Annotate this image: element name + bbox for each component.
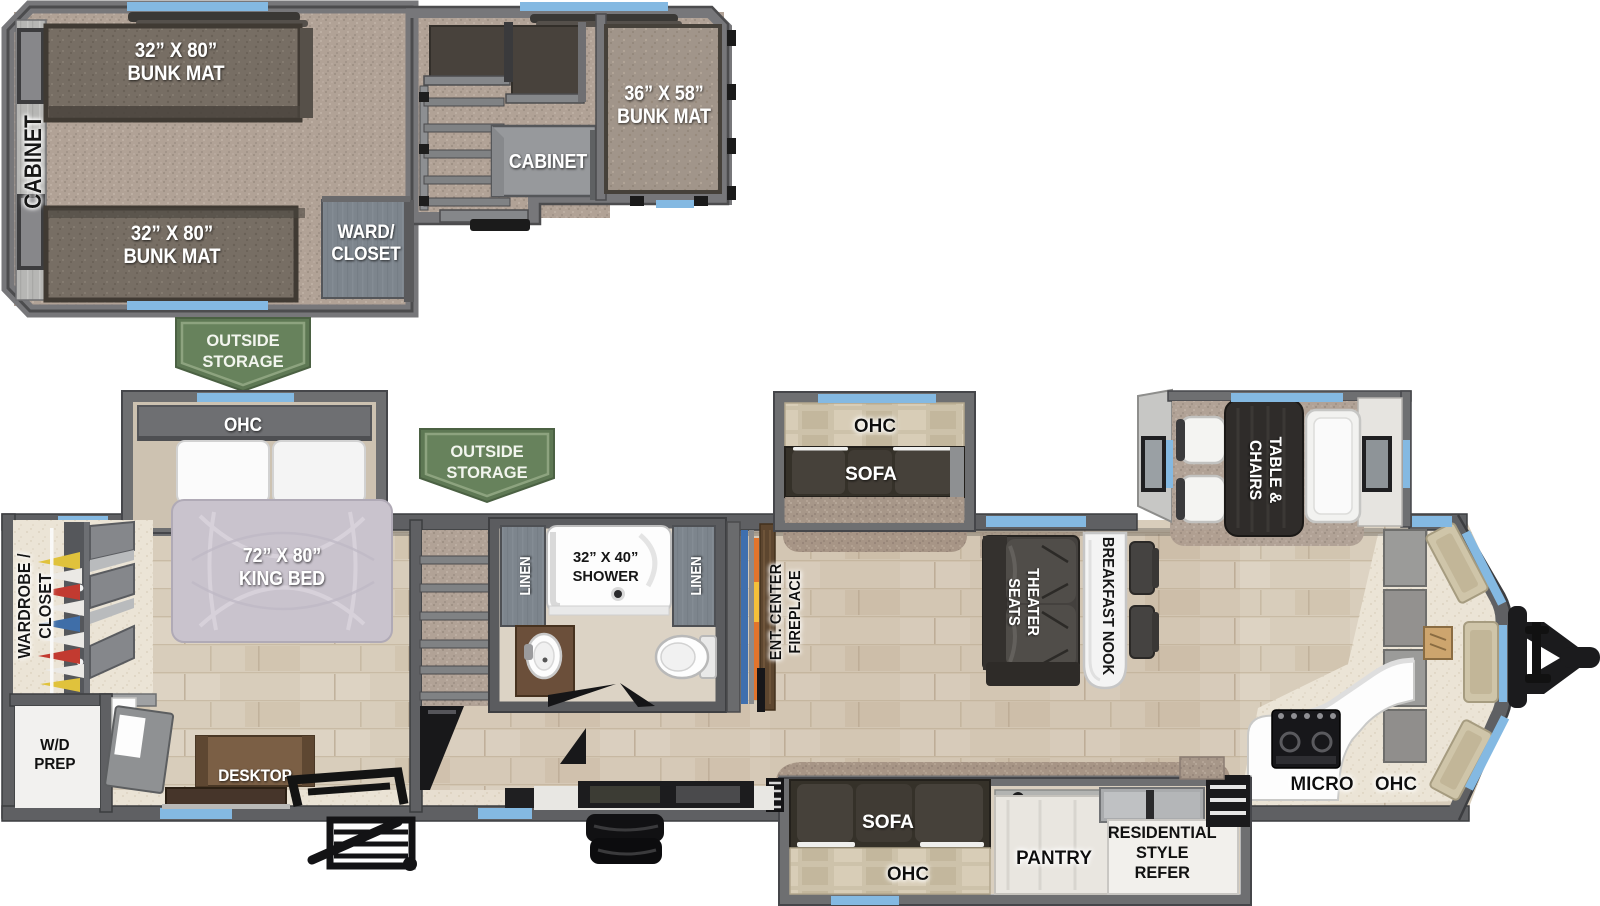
- svg-text:CLOSET: CLOSET: [331, 243, 400, 264]
- svg-text:CABINET: CABINET: [20, 115, 47, 209]
- svg-text:36” X 58”: 36” X 58”: [624, 82, 703, 106]
- svg-text:SEATS: SEATS: [1005, 578, 1023, 625]
- svg-text:OHC: OHC: [1375, 774, 1418, 795]
- svg-text:TABLE &: TABLE &: [1266, 437, 1284, 504]
- svg-text:ENT. CENTER: ENT. CENTER: [767, 564, 785, 660]
- svg-text:THEATER: THEATER: [1024, 568, 1042, 636]
- svg-text:PANTRY: PANTRY: [1016, 848, 1092, 869]
- svg-text:32” X 80”: 32” X 80”: [135, 39, 217, 62]
- svg-text:32” X 80”: 32” X 80”: [131, 222, 213, 245]
- svg-text:72” X 80”: 72” X 80”: [243, 544, 321, 566]
- svg-text:BUNK MAT: BUNK MAT: [127, 62, 224, 85]
- svg-text:BUNK MAT: BUNK MAT: [617, 105, 711, 129]
- svg-text:BUNK MAT: BUNK MAT: [123, 245, 220, 268]
- svg-text:DESKTOP: DESKTOP: [218, 766, 292, 785]
- svg-text:LINEN: LINEN: [517, 556, 533, 595]
- svg-text:WARDROBE /: WARDROBE /: [14, 553, 34, 658]
- svg-text:OHC: OHC: [887, 864, 930, 885]
- svg-text:REFER: REFER: [1135, 864, 1190, 882]
- svg-text:SHOWER: SHOWER: [573, 569, 639, 585]
- svg-text:LINEN: LINEN: [688, 556, 704, 595]
- svg-text:OUTSIDE: OUTSIDE: [206, 332, 279, 350]
- svg-text:STORAGE: STORAGE: [446, 464, 527, 482]
- svg-text:CHAIRS: CHAIRS: [1246, 440, 1264, 500]
- svg-text:SOFA: SOFA: [845, 464, 897, 485]
- svg-text:KING BED: KING BED: [239, 567, 325, 589]
- svg-text:WARD/: WARD/: [338, 221, 395, 242]
- svg-text:OUTSIDE: OUTSIDE: [450, 443, 523, 461]
- svg-text:PREP: PREP: [34, 756, 75, 773]
- svg-text:SOFA: SOFA: [862, 812, 914, 833]
- svg-text:BREAKFAST NOOK: BREAKFAST NOOK: [1099, 537, 1116, 675]
- svg-text:RESIDENTIAL: RESIDENTIAL: [1108, 824, 1217, 842]
- svg-text:W/D: W/D: [40, 737, 69, 754]
- svg-text:CABINET: CABINET: [509, 150, 588, 172]
- svg-text:STYLE: STYLE: [1136, 844, 1189, 862]
- svg-text:MICRO: MICRO: [1290, 774, 1353, 795]
- svg-text:OHC: OHC: [854, 416, 897, 437]
- svg-text:OHC: OHC: [224, 414, 262, 435]
- svg-text:32” X 40”: 32” X 40”: [573, 550, 638, 566]
- svg-text:STORAGE: STORAGE: [202, 353, 283, 371]
- svg-text:FIREPLACE: FIREPLACE: [786, 570, 804, 653]
- svg-text:CLOSET: CLOSET: [35, 573, 55, 639]
